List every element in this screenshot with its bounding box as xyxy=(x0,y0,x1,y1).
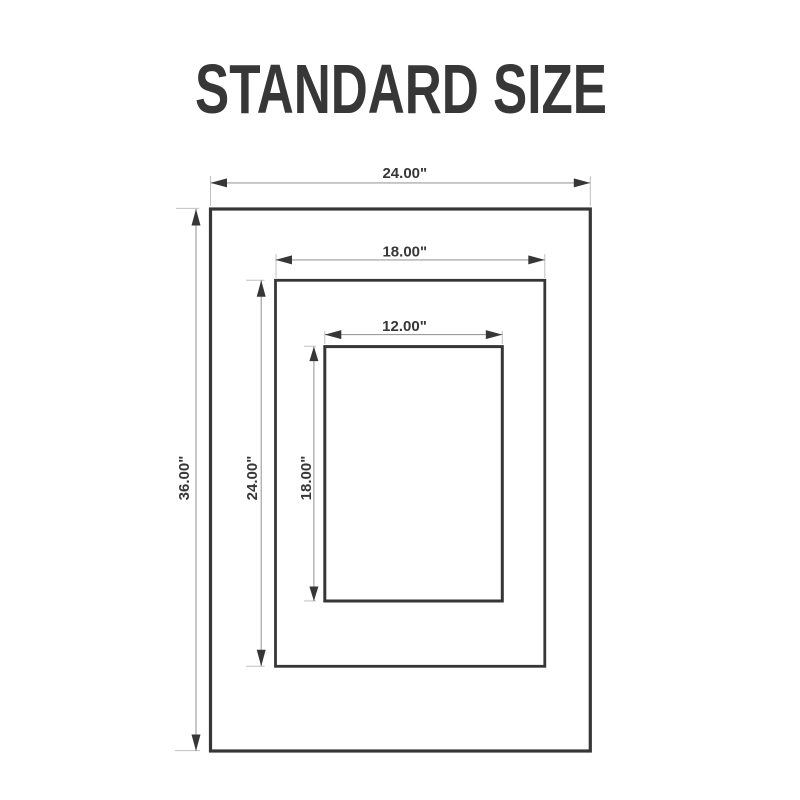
svg-text:STANDARD SIZE: STANDARD SIZE xyxy=(195,50,607,128)
svg-text:24.00": 24.00" xyxy=(244,456,261,501)
svg-text:24.00": 24.00" xyxy=(382,165,427,182)
svg-text:18.00": 18.00" xyxy=(382,243,427,260)
svg-text:36.00": 36.00" xyxy=(176,456,193,501)
svg-text:18.00": 18.00" xyxy=(298,456,315,501)
svg-text:12.00": 12.00" xyxy=(382,318,427,335)
